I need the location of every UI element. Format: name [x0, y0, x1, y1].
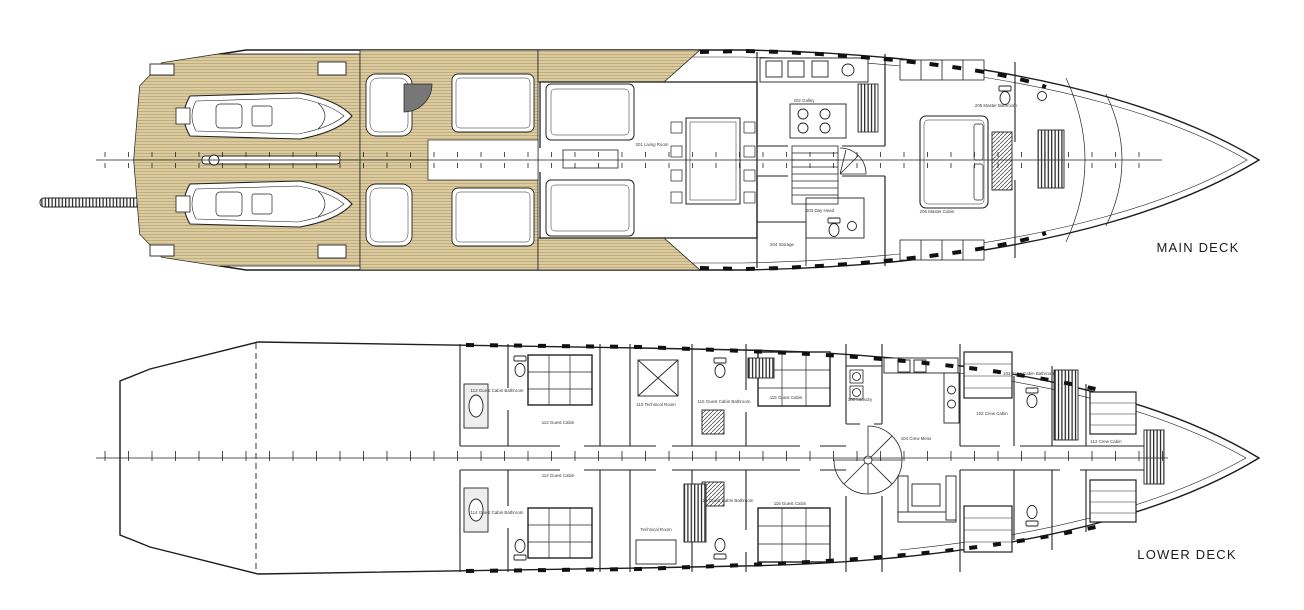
ga-drawing: 201 Living Room 202 Galley 203 Day Head … [0, 0, 1304, 610]
main-deck-plan: 201 Living Room 202 Galley 203 Day Head … [40, 50, 1259, 270]
toilet-icon [999, 86, 1011, 105]
main-deck-title: MAIN DECK [1156, 240, 1239, 255]
room-label: 203 Day Head [806, 208, 835, 213]
ladder-hatch-icon [1054, 370, 1078, 440]
room-label: 206 Master Cabin [920, 209, 955, 214]
room-label: 202 Galley [794, 98, 816, 103]
centerline [96, 152, 1162, 168]
frame-ticks [100, 152, 1158, 168]
shower-icon [702, 410, 724, 434]
room-label: 116 Guest Cabin [774, 501, 807, 506]
room-label: 114 Guest Cabin [542, 473, 575, 478]
sink-icon [1038, 92, 1047, 101]
room-label: 115 Guest Cabin Bathroom [698, 399, 751, 404]
ladder-hatch-icon [748, 358, 774, 378]
room-label: 112 Crew Cabin [1090, 439, 1122, 444]
room-label: 201 Living Room [636, 142, 669, 147]
room-label: 103 Crew Cabin Bathroom [1003, 371, 1055, 376]
toilet-icon [514, 540, 526, 561]
galley-counter [760, 58, 868, 82]
sink-icon [848, 222, 857, 231]
room-label: Technical Room [640, 527, 672, 532]
lower-deck-plan: 113 Guest Cabin Bathroom 113 Guest Cabin… [96, 342, 1259, 574]
room-label: 205 Master Bathroom [975, 103, 1018, 108]
tender-icon [176, 181, 352, 227]
tender-icon [176, 93, 352, 139]
toilet-icon [714, 539, 726, 560]
toilet-icon [828, 218, 840, 237]
room-label: 115 Guest Cabin [770, 395, 803, 400]
sofa-icon [546, 84, 634, 140]
toilet-icon [1026, 388, 1038, 408]
room-label: 113 Guest Cabin [542, 420, 575, 425]
centerline [96, 450, 1168, 466]
frame-ticks [100, 450, 1164, 466]
yacht-ga-canvas: 201 Living Room 202 Galley 203 Day Head … [0, 0, 1304, 610]
toilet-icon [714, 358, 726, 378]
room-label: 113 Guest Cabin Bathroom [471, 388, 524, 393]
sofa-icon [546, 180, 634, 236]
room-label: 114 Guest Cabin Bathroom [471, 510, 524, 515]
room-label: 110 Technical Room [636, 402, 676, 407]
room-label: 104 Crew Mess [901, 436, 932, 441]
room-label: 116 Guest Cabin Bathroom [701, 498, 754, 503]
dumbwaiter-icon [858, 84, 878, 132]
sink-icon [842, 64, 854, 76]
toilet-icon [514, 356, 526, 377]
sink-icon [948, 386, 956, 394]
lower-deck-title: LOWER DECK [1137, 547, 1236, 562]
room-label: 108 Laundry [848, 397, 873, 402]
room-label: 204 Storage [770, 242, 794, 247]
stove-icon [790, 104, 846, 138]
toilet-icon [1026, 506, 1038, 527]
ladder-hatch-icon [684, 484, 706, 542]
room-label: 102 Crew Cabin [976, 411, 1008, 416]
